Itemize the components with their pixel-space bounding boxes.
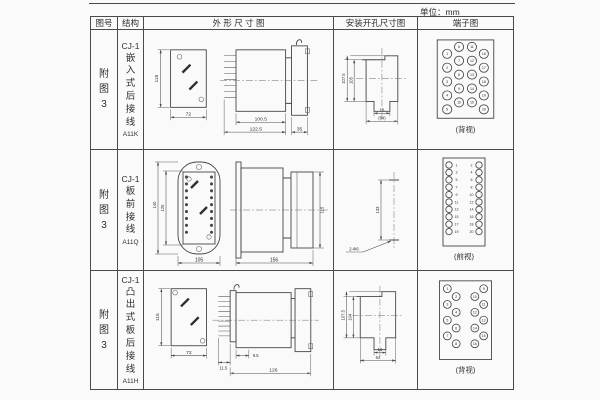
- dim-front-width: 105: [195, 257, 204, 263]
- terminal-number: 4: [455, 311, 457, 315]
- terminal-number: 5: [446, 108, 448, 112]
- terminal-grid: 1357911131517192468101214161820: [446, 162, 482, 235]
- terminal-drawing-cell-row3: 12345678910111213141516 (背视): [418, 271, 513, 389]
- structure-desc: 板前接线: [126, 186, 136, 237]
- terminal-number: 10: [473, 295, 477, 299]
- structure-code: A11H: [123, 378, 139, 385]
- structure-cell-row1: CJ-1 嵌入式后接线 A11K: [118, 30, 143, 149]
- terminal-number: 10: [470, 193, 474, 197]
- mounting-drawing-a11q: 133 2-Φ6: [334, 150, 417, 270]
- terminal-number: 20: [482, 108, 486, 112]
- terminal-number: 20: [470, 230, 474, 234]
- dim-mount-h1: 16: [380, 108, 385, 113]
- terminal-number: 1: [446, 52, 448, 56]
- dim-front-height: 115: [155, 313, 161, 321]
- model-label: CJ-1: [122, 41, 140, 51]
- structure-cell-row2: CJ-1 板前接线 A11Q: [118, 150, 143, 270]
- terminal-number: 16: [482, 52, 486, 56]
- terminal-circle: [446, 184, 452, 190]
- fig-no-cell-row1: 附图3: [91, 30, 117, 149]
- terminal-circle: [476, 214, 482, 220]
- terminal-number: 18: [482, 80, 486, 84]
- terminal-number: 14: [470, 87, 474, 91]
- terminal-drawing-a11q: 1357911131517192468101214161820 (前视): [418, 150, 513, 270]
- structure-code: A11K: [123, 131, 138, 138]
- terminal-number: 1: [456, 163, 458, 167]
- terminal-circle: [446, 228, 452, 234]
- terminal-number: 18: [470, 223, 474, 227]
- terminal-circle: [446, 162, 452, 168]
- terminal-number: 13: [470, 73, 474, 77]
- dim-front-h1: 140: [152, 201, 157, 209]
- terminal-number: 11: [455, 200, 459, 204]
- terminal-number: 5: [446, 318, 448, 322]
- terminal-number: 6: [458, 45, 460, 49]
- outline-drawing-a11h: 115 72 11.5 9.5: [144, 271, 333, 389]
- terminal-number: 16: [470, 215, 474, 219]
- terminal-number: 17: [455, 223, 459, 227]
- terminal-number: 11: [470, 45, 474, 49]
- terminal-number: 7: [446, 334, 448, 338]
- terminal-circle: [446, 214, 452, 220]
- terminal-number: 12: [473, 311, 477, 315]
- terminal-number: 9: [456, 193, 458, 197]
- fig-no-text: 附图3: [99, 308, 109, 353]
- header-cell-fig-no: 图号: [91, 17, 117, 29]
- terminal-number: 13: [482, 318, 486, 322]
- terminal-number: 14: [470, 208, 474, 212]
- terminal-number: 2: [455, 295, 457, 299]
- terminal-number: 19: [455, 230, 459, 234]
- dim-side-body: 100.5: [255, 116, 268, 122]
- terminal-circle: [476, 191, 482, 197]
- terminal-number: 15: [455, 215, 459, 219]
- terminal-number: 2: [471, 163, 473, 167]
- dim-mount-v1: 107.5: [341, 309, 346, 320]
- fig-no-cell-row3: 附图3: [91, 271, 117, 389]
- header-cell-outline: 外 形 尺 寸 图: [144, 17, 333, 29]
- terminal-number: 12: [470, 200, 474, 204]
- terminal-drawing-a11k: 1234567891011121314151617181920 (背视): [418, 30, 513, 149]
- header-cell-structure: 结构: [118, 17, 143, 29]
- terminal-number: 8: [471, 186, 473, 190]
- mounting-drawing-cell-row1: 107.5 105 16 (64): [334, 30, 417, 149]
- terminal-number: 6: [471, 178, 473, 182]
- model-label: CJ-1: [122, 174, 140, 184]
- dim-front-width: 72: [186, 111, 192, 117]
- terminal-number: 5: [456, 178, 458, 182]
- outline-drawing-a11k: 115 72 100.5 122.5: [144, 30, 333, 149]
- header-cell-terminal: 端子图: [418, 17, 513, 29]
- terminal-circle: [476, 228, 482, 234]
- terminal-number: 3: [446, 80, 448, 84]
- fig-no-text: 附图3: [99, 67, 109, 112]
- terminal-circle: [476, 184, 482, 190]
- terminal-circle: [476, 199, 482, 205]
- mounting-drawing-cell-row3: 107.5 104 16 64: [334, 271, 417, 389]
- top-rule: [89, 3, 515, 4]
- dim-mount-v1: 133: [375, 206, 380, 214]
- terminal-circle: [446, 221, 452, 227]
- terminal-number: 1: [446, 287, 448, 291]
- terminal-drawing-a11h: 12345678910111213141516 (背视): [418, 271, 513, 389]
- terminal-circle: [446, 191, 452, 197]
- structure-desc: 凸出式板后接线: [126, 287, 136, 377]
- terminal-circle: [446, 177, 452, 183]
- terminal-number: 9: [458, 87, 460, 91]
- terminal-number: 19: [482, 94, 486, 98]
- dim-mount-v1: 107.5: [341, 73, 346, 84]
- terminal-grid: 12345678910111213141516: [443, 285, 487, 348]
- dim-side-flange: 35: [297, 126, 303, 132]
- terminal-circle: [476, 177, 482, 183]
- terminal-number: 12: [470, 59, 474, 63]
- model-label: CJ-1: [122, 275, 140, 285]
- terminal-number: 14: [473, 326, 477, 330]
- outline-drawing-cell-row3: 115 72 11.5 9.5: [144, 271, 333, 389]
- dim-mount-h1: 16: [378, 347, 383, 352]
- terminal-view-label: (前视): [454, 251, 474, 261]
- terminal-number: 2: [446, 66, 448, 70]
- terminal-number: 8: [458, 73, 460, 77]
- outline-drawing-cell-row2: 140 125 105 156 115: [144, 150, 333, 270]
- structure-cell-row3: CJ-1 凸出式板后接线 A11H: [118, 271, 143, 389]
- mounting-drawing-a11h: 107.5 104 16 64: [334, 271, 417, 389]
- terminal-circle: [476, 162, 482, 168]
- dim-mount-v2: 105: [348, 76, 353, 84]
- terminal-number: 4: [471, 171, 473, 175]
- terminal-number: 15: [482, 334, 486, 338]
- terminal-circle: [476, 221, 482, 227]
- dim-front-width: 72: [186, 350, 192, 356]
- mounting-drawing-cell-row2: 133 2-Φ6: [334, 150, 417, 270]
- terminal-circle: [446, 206, 452, 212]
- terminal-number: 8: [455, 342, 457, 346]
- dim-side-width: 156: [270, 257, 279, 263]
- dim-side-height: 115: [320, 206, 325, 213]
- terminal-circle: [476, 169, 482, 175]
- dim-side-total: 126: [269, 368, 277, 374]
- terminal-number: 9: [483, 287, 485, 291]
- terminal-number: 6: [455, 326, 457, 330]
- terminal-view-label: (背视): [456, 124, 476, 134]
- terminal-number: 10: [457, 101, 461, 105]
- fig-no-cell-row2: 附图3: [91, 150, 117, 270]
- terminal-number: 17: [482, 66, 486, 70]
- fig-no-text: 附图3: [99, 188, 109, 233]
- terminal-number: 7: [456, 186, 458, 190]
- dim-offset: 9.5: [253, 353, 259, 358]
- terminal-drawing-cell-row1: 1234567891011121314151617181920 (背视): [418, 30, 513, 149]
- dim-front-height: 115: [154, 74, 160, 82]
- datasheet-page: 单位：mm 图号 结构 外 形 尺 寸 图 安装开孔尺寸图 端子图 附图3 CJ…: [0, 0, 600, 400]
- terminal-number: 3: [456, 171, 458, 175]
- outline-drawing-cell-row1: 115 72 100.5 122.5: [144, 30, 333, 149]
- spec-table: 图号 结构 外 形 尺 寸 图 安装开孔尺寸图 端子图 附图3 CJ-1 嵌入式…: [90, 16, 514, 390]
- dim-mount-v2: 104: [348, 313, 353, 321]
- mounting-drawing-a11k: 107.5 105 16 (64): [334, 30, 417, 149]
- terminal-grid: 1234567891011121314151617181920: [443, 42, 489, 114]
- terminal-number: 16: [473, 342, 477, 346]
- outline-drawing-a11q: 140 125 105 156 115: [144, 150, 333, 270]
- terminal-number: 7: [458, 59, 460, 63]
- terminal-number: 3: [446, 303, 448, 307]
- terminal-number: 4: [446, 94, 448, 98]
- structure-code: A11Q: [122, 239, 138, 246]
- dim-front-h2: 125: [160, 204, 165, 212]
- dim-side-total: 122.5: [250, 126, 263, 132]
- terminal-number: 13: [455, 208, 459, 212]
- hole-note: 2-Φ6: [349, 247, 359, 252]
- dim-mount-h2: 64: [376, 355, 381, 360]
- dim-mount-h2: (64): [378, 116, 386, 121]
- header-cell-mounting: 安装开孔尺寸图: [334, 17, 417, 29]
- terminal-drawing-cell-row2: 1357911131517192468101214161820 (前视): [418, 150, 513, 270]
- terminal-circle: [446, 199, 452, 205]
- terminal-circle: [476, 206, 482, 212]
- structure-desc: 嵌入式后接线: [126, 53, 136, 130]
- dim-pin-length: 11.5: [219, 365, 227, 370]
- terminal-view-label: (背视): [456, 365, 476, 374]
- terminal-number: 11: [482, 303, 486, 307]
- terminal-number: 15: [470, 101, 474, 105]
- terminal-circle: [446, 169, 452, 175]
